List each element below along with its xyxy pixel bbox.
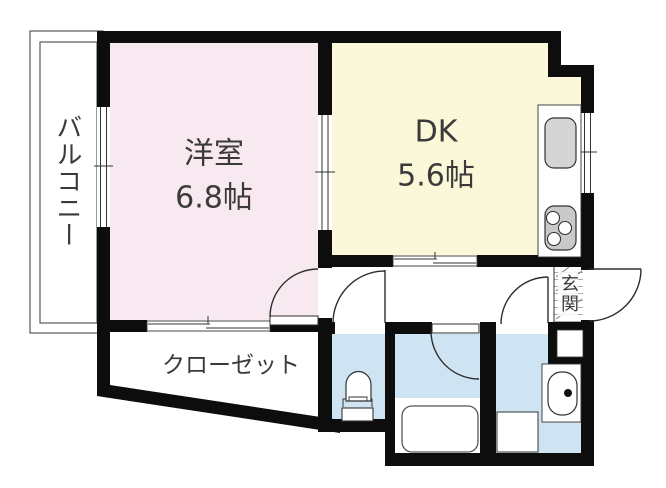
dk-label: DK 5.6帖 <box>397 111 475 198</box>
faucet-dot <box>564 389 572 397</box>
stove <box>545 206 576 250</box>
kitchen-sink <box>545 118 576 168</box>
bathtub <box>402 406 478 452</box>
floor-plan-drawing <box>0 0 666 488</box>
kitchen-counter <box>538 105 581 257</box>
entrance-door <box>589 269 641 321</box>
dk-size: 5.6帖 <box>397 154 475 198</box>
western-room-name: 洋室 <box>175 133 253 177</box>
toilet <box>342 372 373 421</box>
washing-machine-pan <box>497 412 538 452</box>
western-room-label: 洋室 6.8帖 <box>175 133 253 220</box>
shoe-cabinet <box>557 330 583 357</box>
closet-label: クローゼット <box>162 349 300 382</box>
floor-plan: バルコニー 洋室 6.8帖 DK 5.6帖 クローゼット 玄関 <box>0 0 666 488</box>
balcony-label: バルコニー <box>47 114 85 249</box>
entrance-label: 玄関 <box>558 272 578 316</box>
washbasin <box>542 364 581 422</box>
dk-name: DK <box>397 111 475 155</box>
bathroom-floor <box>395 334 480 398</box>
western-room-size: 6.8帖 <box>175 176 253 220</box>
room-divider-window <box>315 115 335 230</box>
